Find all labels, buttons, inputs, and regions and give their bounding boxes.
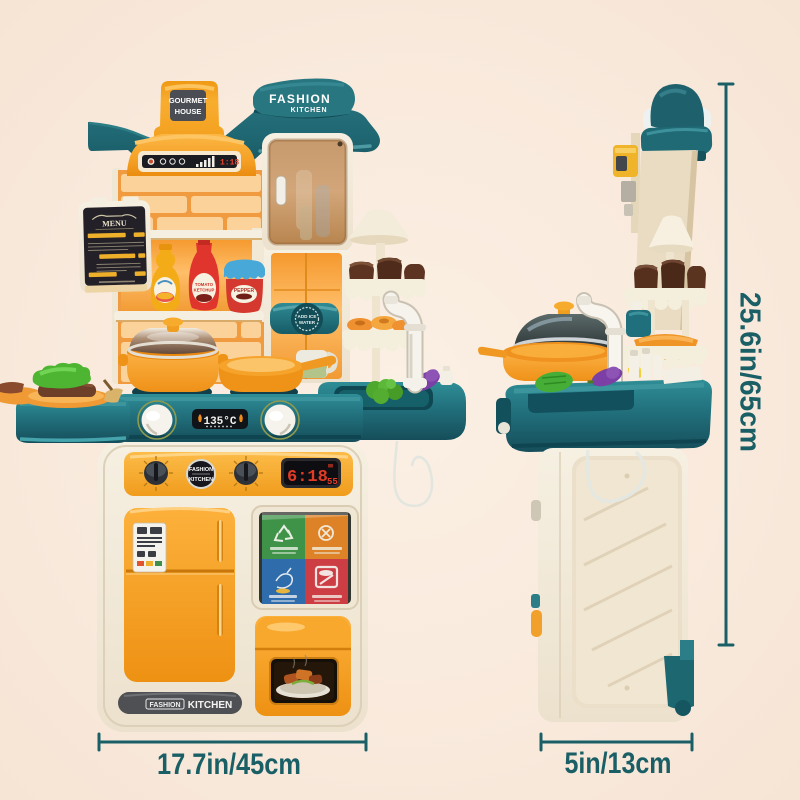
svg-text:PEPPER: PEPPER — [234, 288, 255, 294]
svg-text:25.6in/65cm: 25.6in/65cm — [733, 292, 765, 452]
svg-text:FASHION: FASHION — [189, 467, 213, 473]
svg-text:TOMATO: TOMATO — [195, 282, 214, 287]
svg-text:KITCHEN: KITCHEN — [291, 107, 328, 114]
svg-text:KITCHEN: KITCHEN — [188, 700, 232, 711]
svg-text:5in/13cm: 5in/13cm — [565, 747, 672, 780]
svg-text:KITCHEN: KITCHEN — [189, 477, 213, 483]
svg-text:1:18: 1:18 — [220, 159, 239, 168]
svg-text:55: 55 — [327, 477, 338, 487]
svg-text:KETCHUP: KETCHUP — [194, 288, 215, 293]
svg-text:135°C: 135°C — [203, 416, 236, 428]
svg-text:FASHION: FASHION — [149, 702, 180, 709]
svg-text:17.7in/45cm: 17.7in/45cm — [157, 748, 301, 781]
svg-text:HOUSE: HOUSE — [175, 107, 202, 116]
svg-text:MENU: MENU — [102, 219, 127, 229]
svg-text:FASHION: FASHION — [269, 92, 331, 106]
svg-text:6:18: 6:18 — [287, 468, 328, 487]
svg-text:WATER: WATER — [299, 320, 316, 325]
svg-text:GOURMET: GOURMET — [169, 96, 208, 105]
svg-text:ADD ICE: ADD ICE — [298, 314, 317, 319]
